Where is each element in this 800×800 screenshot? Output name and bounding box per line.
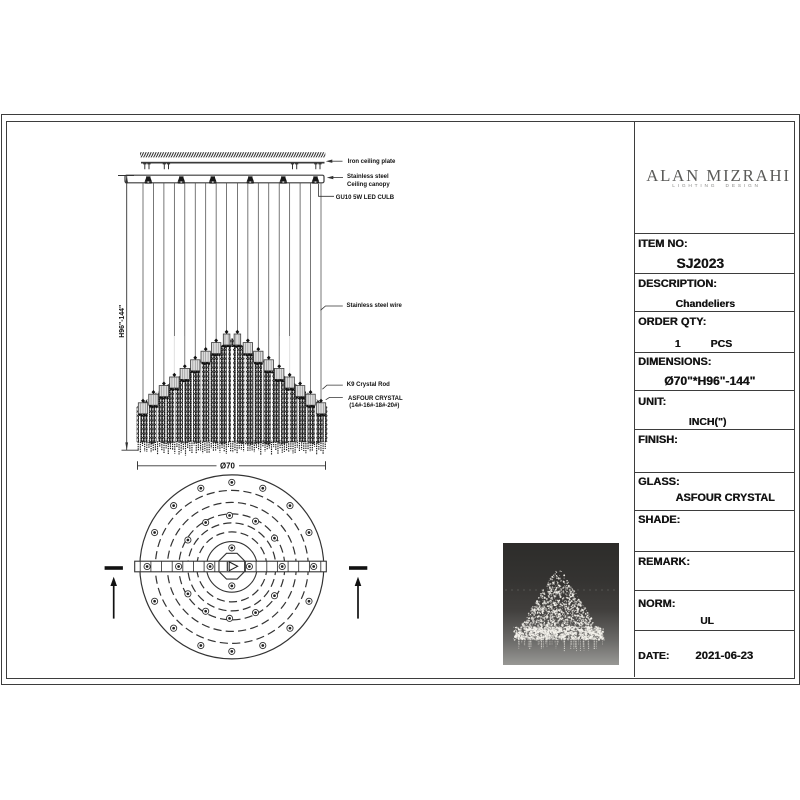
svg-text:ASFOUR CRYSTAL: ASFOUR CRYSTAL bbox=[348, 396, 403, 402]
svg-text:Iron ceiling plate: Iron ceiling plate bbox=[348, 159, 396, 165]
svg-text:Stainless steel: Stainless steel bbox=[347, 174, 389, 180]
svg-text:Ø70: Ø70 bbox=[220, 462, 236, 471]
svg-text:K9 Crystal Rod: K9 Crystal Rod bbox=[347, 382, 390, 388]
svg-text:Ceiling canopy: Ceiling canopy bbox=[347, 182, 390, 188]
svg-text:Stainless steel wire: Stainless steel wire bbox=[347, 303, 403, 309]
svg-text:(14#-16#-18#-20#): (14#-16#-18#-20#) bbox=[349, 403, 399, 409]
svg-text:H96"-144": H96"-144" bbox=[119, 305, 126, 338]
svg-text:GU10 5W LED CULB: GU10 5W LED CULB bbox=[336, 195, 395, 201]
